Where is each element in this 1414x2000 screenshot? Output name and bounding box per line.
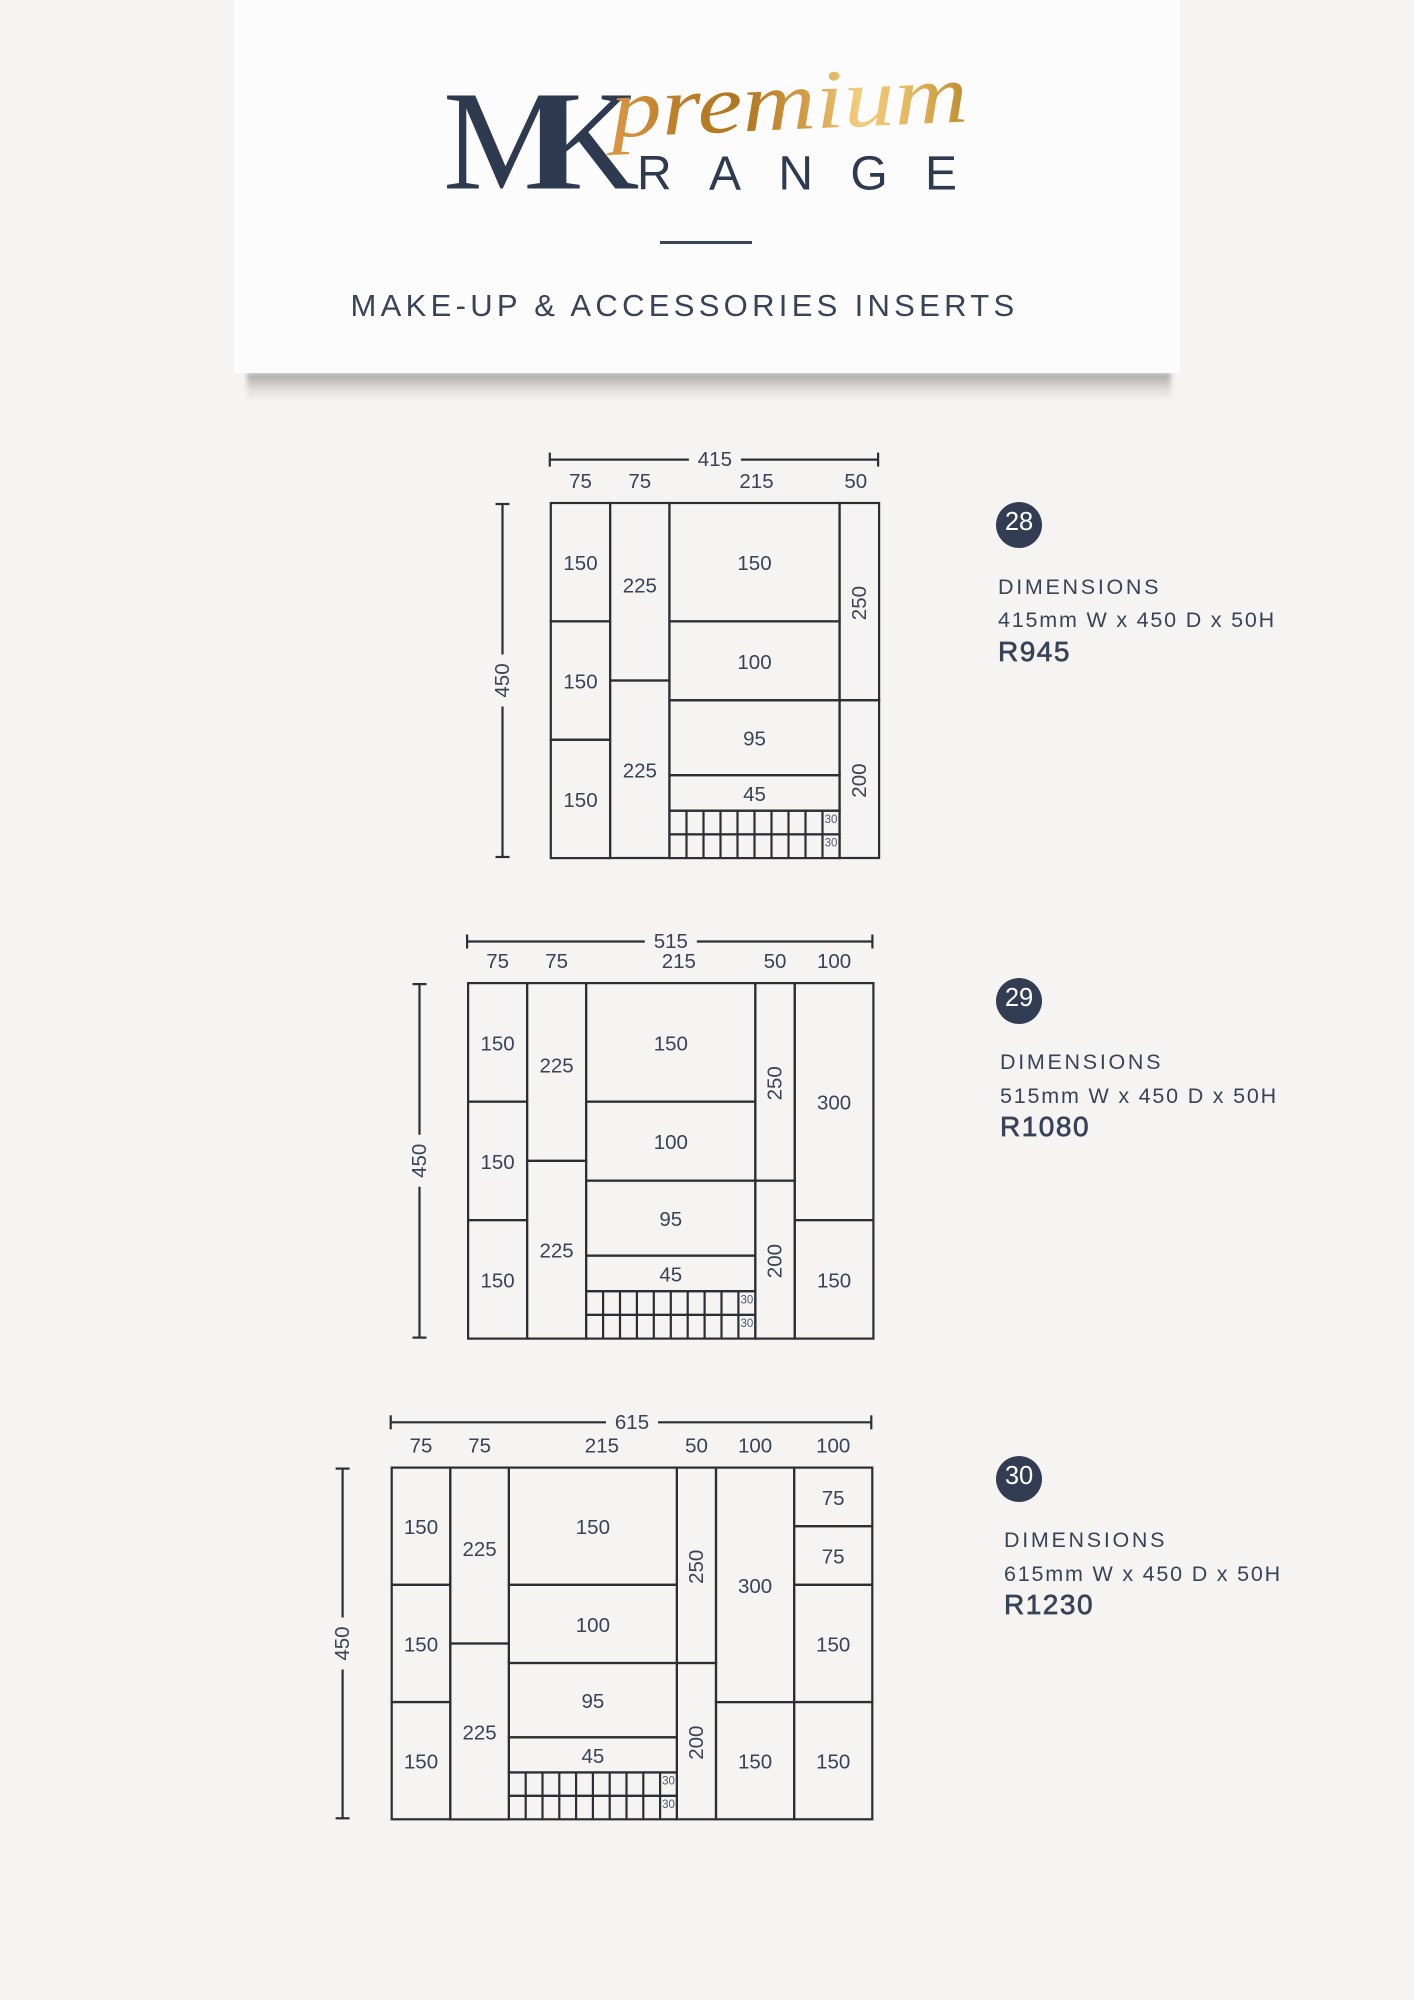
svg-text:225: 225 xyxy=(623,759,657,782)
svg-text:225: 225 xyxy=(539,1240,573,1263)
svg-text:75: 75 xyxy=(468,1434,491,1457)
svg-text:150: 150 xyxy=(576,1516,610,1539)
svg-text:150: 150 xyxy=(654,1032,688,1055)
svg-text:150: 150 xyxy=(563,789,597,812)
svg-text:150: 150 xyxy=(404,1751,438,1774)
svg-text:100: 100 xyxy=(737,651,771,674)
svg-text:30: 30 xyxy=(825,838,838,850)
svg-text:30: 30 xyxy=(662,1799,675,1811)
svg-text:225: 225 xyxy=(462,1721,496,1744)
svg-text:95: 95 xyxy=(581,1690,604,1713)
svg-text:45: 45 xyxy=(659,1263,682,1286)
svg-text:150: 150 xyxy=(563,671,597,694)
svg-text:95: 95 xyxy=(743,728,766,751)
svg-text:100: 100 xyxy=(654,1131,688,1154)
svg-text:250: 250 xyxy=(848,586,871,620)
svg-text:450: 450 xyxy=(491,663,514,697)
svg-text:100: 100 xyxy=(816,1434,850,1457)
svg-text:250: 250 xyxy=(685,1550,708,1584)
svg-text:premium: premium xyxy=(603,47,970,156)
svg-text:150: 150 xyxy=(737,552,771,575)
svg-text:150: 150 xyxy=(816,1634,850,1657)
svg-text:150: 150 xyxy=(738,1751,772,1774)
svg-text:415: 415 xyxy=(698,448,732,471)
svg-text:75: 75 xyxy=(628,470,651,493)
svg-text:30: 30 xyxy=(741,1295,754,1307)
svg-text:30: 30 xyxy=(825,814,838,826)
svg-text:45: 45 xyxy=(743,783,766,806)
svg-text:300: 300 xyxy=(738,1575,772,1598)
svg-text:75: 75 xyxy=(410,1434,433,1457)
svg-text:250: 250 xyxy=(764,1066,787,1100)
svg-text:215: 215 xyxy=(585,1434,619,1457)
svg-text:75: 75 xyxy=(822,1546,845,1569)
svg-text:150: 150 xyxy=(404,1634,438,1657)
svg-text:95: 95 xyxy=(659,1208,682,1231)
svg-text:100: 100 xyxy=(817,950,851,973)
svg-text:75: 75 xyxy=(486,950,509,973)
svg-text:100: 100 xyxy=(738,1434,772,1457)
svg-text:225: 225 xyxy=(462,1538,496,1561)
svg-text:75: 75 xyxy=(569,470,592,493)
svg-text:150: 150 xyxy=(404,1516,438,1539)
svg-text:30: 30 xyxy=(741,1318,754,1330)
svg-text:75: 75 xyxy=(822,1487,845,1510)
svg-text:225: 225 xyxy=(623,574,657,597)
svg-text:450: 450 xyxy=(408,1144,431,1178)
svg-text:200: 200 xyxy=(685,1726,708,1760)
svg-text:150: 150 xyxy=(480,1032,514,1055)
svg-text:100: 100 xyxy=(576,1614,610,1637)
svg-text:215: 215 xyxy=(739,470,773,493)
svg-text:215: 215 xyxy=(662,950,696,973)
svg-text:30: 30 xyxy=(662,1776,675,1788)
svg-text:200: 200 xyxy=(764,1244,787,1278)
svg-text:150: 150 xyxy=(563,552,597,575)
svg-text:75: 75 xyxy=(545,950,568,973)
svg-text:150: 150 xyxy=(816,1751,850,1774)
svg-text:50: 50 xyxy=(685,1434,708,1457)
svg-text:45: 45 xyxy=(581,1745,604,1768)
svg-text:150: 150 xyxy=(480,1151,514,1174)
svg-text:150: 150 xyxy=(480,1269,514,1292)
svg-text:225: 225 xyxy=(539,1055,573,1078)
svg-text:615: 615 xyxy=(615,1411,649,1434)
svg-text:150: 150 xyxy=(817,1269,851,1292)
svg-text:450: 450 xyxy=(331,1626,354,1660)
svg-text:RANGE: RANGE xyxy=(637,148,957,201)
svg-text:50: 50 xyxy=(764,950,787,973)
svg-text:300: 300 xyxy=(817,1092,851,1115)
svg-text:50: 50 xyxy=(844,470,867,493)
svg-text:200: 200 xyxy=(848,763,871,797)
